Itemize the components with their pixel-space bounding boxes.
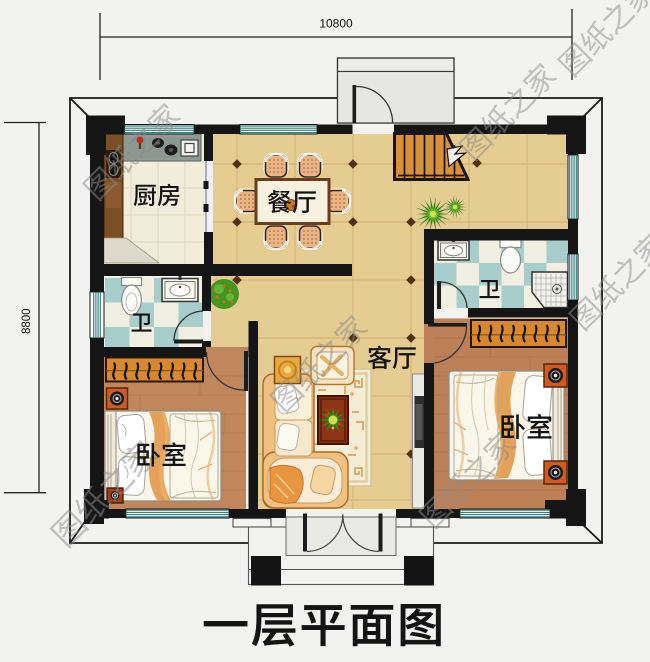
svg-text:8800: 8800	[21, 308, 33, 334]
svg-text:10800: 10800	[319, 17, 353, 31]
